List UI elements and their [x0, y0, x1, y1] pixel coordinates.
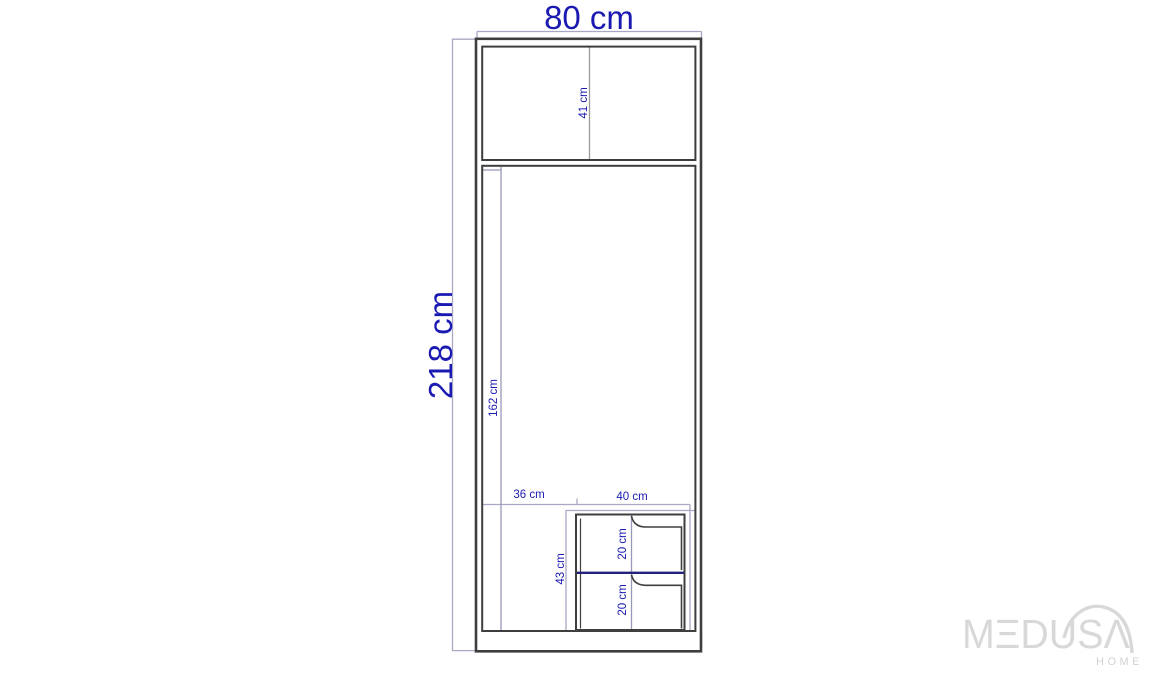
diagram-canvas: 80 cm 218 cm 41 cm 162 cm 36 cm 40 cm 43… [0, 0, 1155, 684]
dim-label-top-shelf-height: 41 cm [578, 73, 592, 133]
bottom-width-dimension-line [482, 499, 690, 631]
brand-logo: MΞDUSΛ HOME [962, 612, 1142, 672]
dim-label-drawer-bottom-height: 20 cm [617, 570, 631, 630]
dim-label-overall-height: 218 cm [424, 265, 456, 425]
drawer2-handle-cutout [632, 575, 682, 629]
dim-label-drawer-top-height: 20 cm [617, 514, 631, 574]
dim-label-drawer-unit-width: 40 cm [602, 491, 662, 505]
logo-wordmark: MΞDUSΛ [962, 612, 1135, 657]
dim-label-drawer-unit-height: 43 cm [555, 539, 569, 599]
main-compartment [482, 166, 695, 631]
drawer1-handle-cutout [632, 516, 682, 570]
dim-label-hanging-section-height: 162 cm [488, 368, 502, 428]
dim-label-left-section-width: 36 cm [499, 489, 559, 503]
logo-subtitle: HOME [1096, 656, 1143, 668]
dim-label-overall-width: 80 cm [519, 1, 659, 33]
